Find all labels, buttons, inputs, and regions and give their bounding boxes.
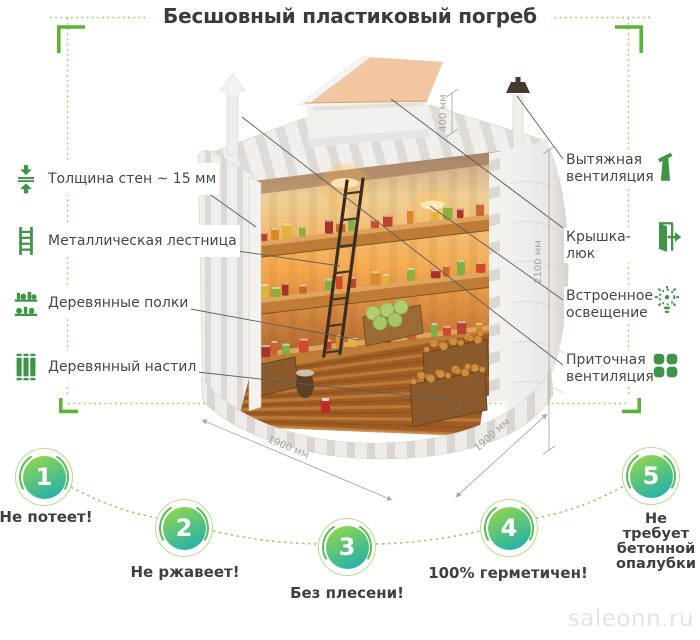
exhaust-vent-icon xyxy=(652,151,680,183)
benefit-number: 1 xyxy=(23,456,66,499)
hatch-open-lid xyxy=(298,57,443,105)
feature-label: Толщина стен ~ 15 мм xyxy=(48,171,216,187)
benefit-label-1: Не потеет! xyxy=(0,508,93,526)
plastic-cellar-illustration xyxy=(195,55,575,465)
page-title: Бесшовный пластиковый погреб xyxy=(149,2,551,30)
benefit-badge-2: 2 xyxy=(155,499,213,557)
benefit-number: 2 xyxy=(163,507,206,550)
benefit-label-5: Не требует бетонной опалубки xyxy=(612,512,700,572)
benefit-badge-3: 3 xyxy=(318,518,376,576)
feature-metal-ladder: Металлическая лестница xyxy=(10,225,240,257)
benefit-number: 4 xyxy=(488,507,531,550)
wall-cut-edge xyxy=(249,177,261,411)
shelves-icon xyxy=(13,288,39,318)
ladder-icon xyxy=(13,226,39,256)
decking-icon xyxy=(13,352,39,382)
benefit-number: 3 xyxy=(326,526,369,569)
watermark: saleonn.ru xyxy=(568,606,694,632)
fan-icon xyxy=(652,352,679,379)
feature-label: Деревянные полки xyxy=(48,295,188,311)
wall-thickness-icon xyxy=(13,164,39,194)
red-jar xyxy=(321,400,330,413)
benefit-label-2: Не ржавеет! xyxy=(130,563,239,581)
benefit-badge-1: 1 xyxy=(15,448,73,506)
infographic-canvas: Бесшовный пластиковый погреб xyxy=(0,0,700,640)
ceiling-lamp xyxy=(421,201,445,210)
feature-lighting-label: Встроенное освещение xyxy=(564,287,658,322)
feature-hatch-lid-label: Крышка-люк xyxy=(564,228,658,263)
feature-wall-thickness: Толщина стен ~ 15 мм xyxy=(10,163,219,195)
benefit-badge-4: 4 xyxy=(480,499,538,557)
feature-supply-vent-label: Приточная вентиляция xyxy=(564,351,658,386)
benefit-number: 5 xyxy=(630,455,673,498)
hatch-lid-icon xyxy=(652,221,682,253)
feature-wooden-shelves: Деревянные полки xyxy=(10,287,191,319)
benefit-badge-5: 5 xyxy=(622,447,680,505)
feature-label: Деревянный настил xyxy=(48,359,196,375)
benefit-label-4: 100% герметичен! xyxy=(428,564,588,582)
right-wall xyxy=(501,141,568,427)
light-bulb-icon xyxy=(652,285,682,319)
feature-wooden-decking: Деревянный настил xyxy=(10,351,199,383)
feature-label: Металлическая лестница xyxy=(48,233,237,249)
cellar-interior xyxy=(237,151,501,435)
feature-exhaust-vent-label: Вытяжная вентиляция xyxy=(564,151,658,186)
benefit-label-3: Без плесени! xyxy=(290,584,404,602)
